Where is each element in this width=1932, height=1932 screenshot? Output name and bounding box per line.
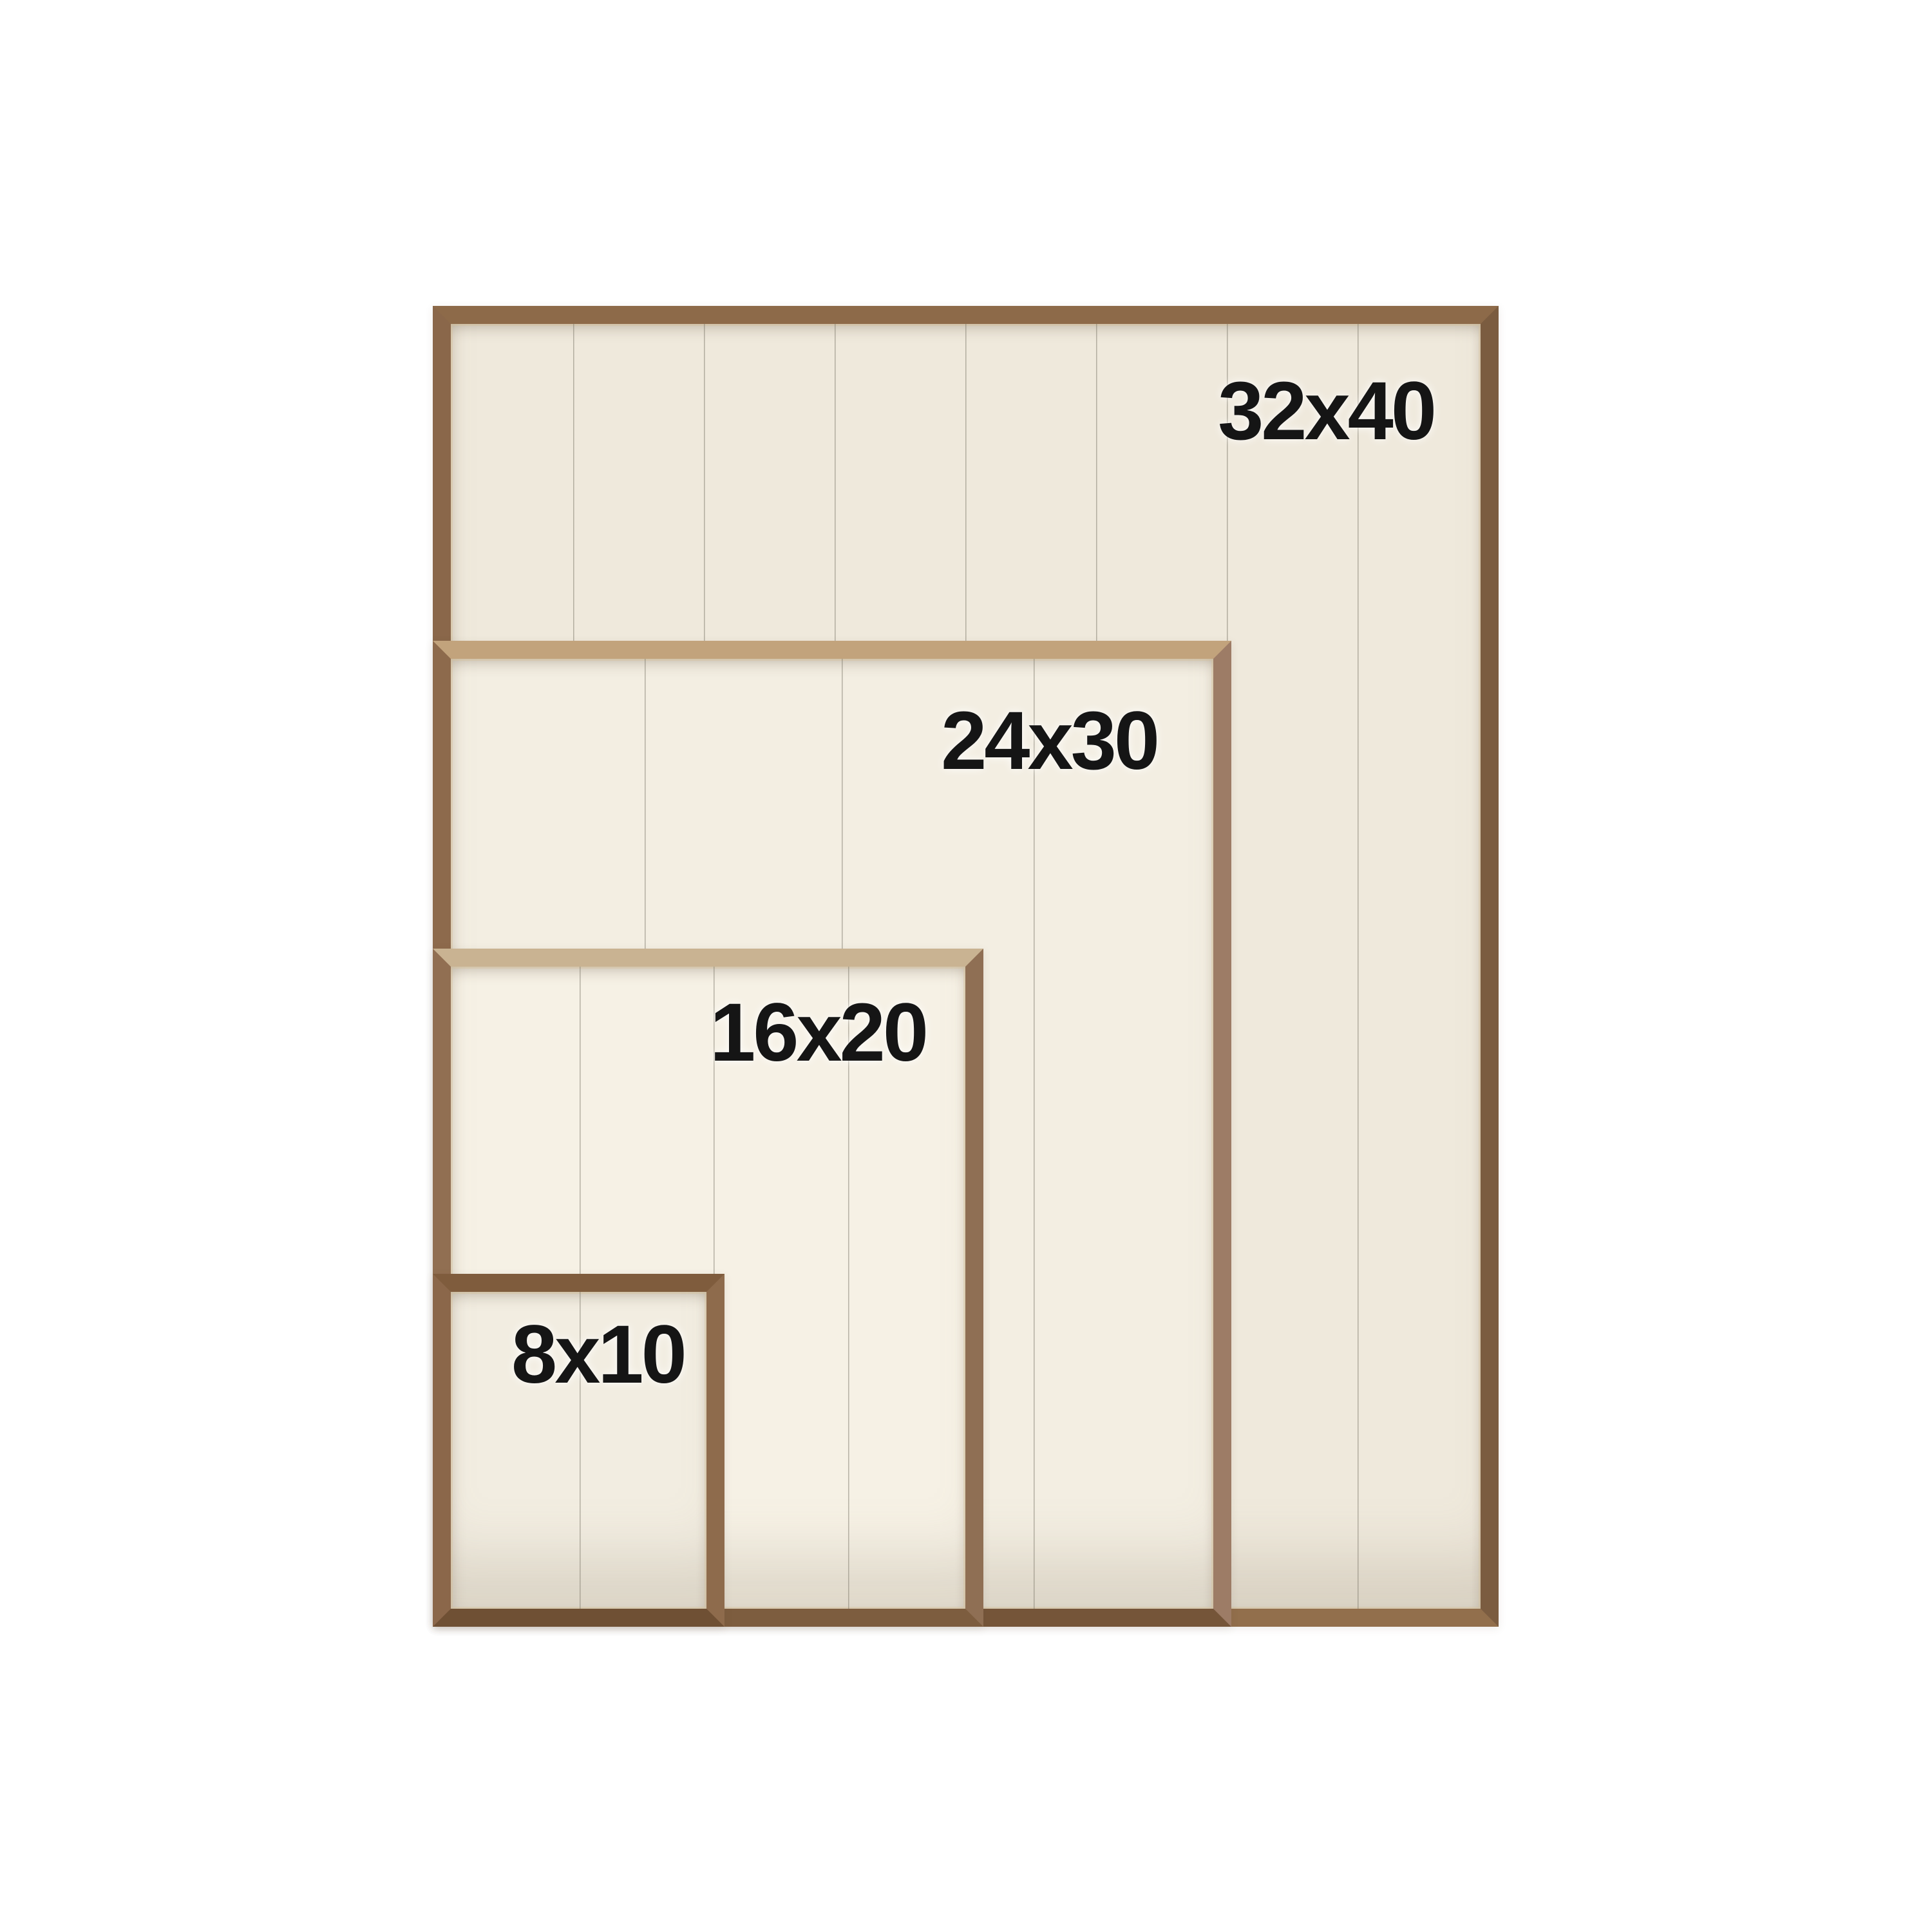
size-label-16x20: 16x20 [710,992,926,1074]
size-label-32x40: 32x40 [1218,370,1434,453]
plank-seam [1034,659,1035,1609]
frame-size-comparison: 32x4024x3016x208x10 [0,0,1932,1932]
size-label-24x30: 24x30 [941,700,1157,782]
plank-seam [1358,324,1359,1609]
size-label-8x10: 8x10 [511,1314,685,1396]
frame-8x10: 8x10 [433,1274,724,1627]
shiplap-panel-8x10: 8x10 [451,1292,706,1609]
